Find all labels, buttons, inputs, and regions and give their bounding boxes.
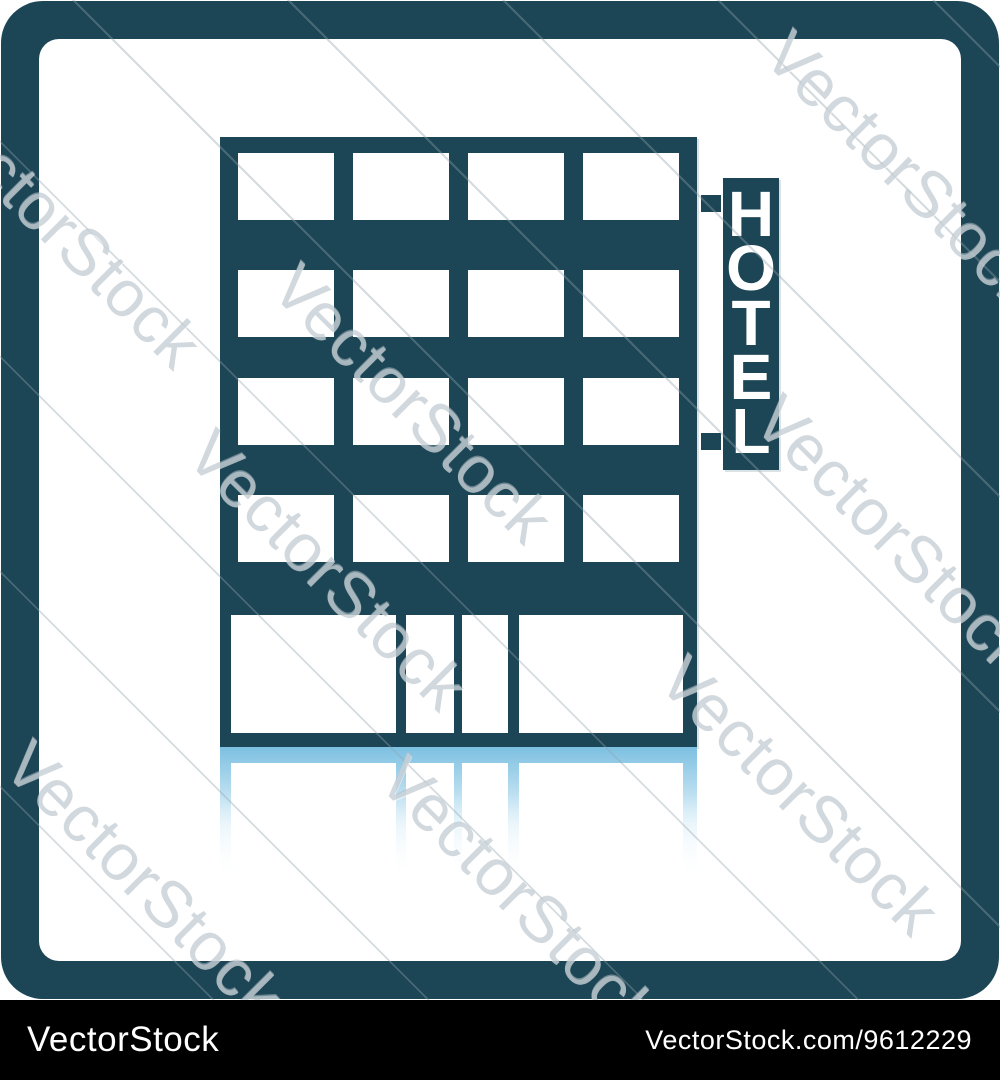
entrance-door-left: [406, 615, 454, 733]
building-window: [583, 495, 679, 562]
building-window: [583, 153, 679, 220]
building-window: [353, 270, 449, 337]
vectorstock-logo-text: VectorStock: [27, 1020, 219, 1060]
building-window: [238, 270, 334, 337]
building-window: [583, 378, 679, 445]
stock-image-canvas: H O T E L VectorStock VectorStock Vector…: [0, 0, 1000, 1080]
reflection-fade: [214, 747, 703, 907]
building-window: [468, 495, 564, 562]
building-reflection: [220, 747, 697, 905]
building-window: [353, 378, 449, 445]
storefront-window-left: [231, 615, 396, 733]
sign-letter: T: [731, 300, 770, 346]
building-window: [468, 270, 564, 337]
sign-letter: O: [726, 245, 776, 291]
building-window: [238, 378, 334, 445]
entrance-door-right: [462, 615, 508, 733]
building-window: [583, 270, 679, 337]
sign-bracket-bottom: [701, 433, 721, 450]
building-window: [353, 495, 449, 562]
sign-bracket-top: [701, 195, 721, 212]
storefront-window-right: [519, 615, 683, 733]
building-window: [238, 153, 334, 220]
sign-letter: L: [731, 408, 770, 454]
hotel-signboard: H O T E L: [723, 178, 779, 470]
sign-letter: H: [728, 191, 774, 237]
building-window: [468, 153, 564, 220]
footer-bar: VectorStock VectorStock.com/9612229: [0, 1000, 1000, 1080]
image-credit-url: VectorStock.com/9612229: [645, 1025, 972, 1056]
building-window: [353, 153, 449, 220]
hotel-building-icon: [220, 137, 697, 747]
sign-letter: E: [730, 354, 773, 400]
building-window: [468, 378, 564, 445]
building-window: [238, 495, 334, 562]
